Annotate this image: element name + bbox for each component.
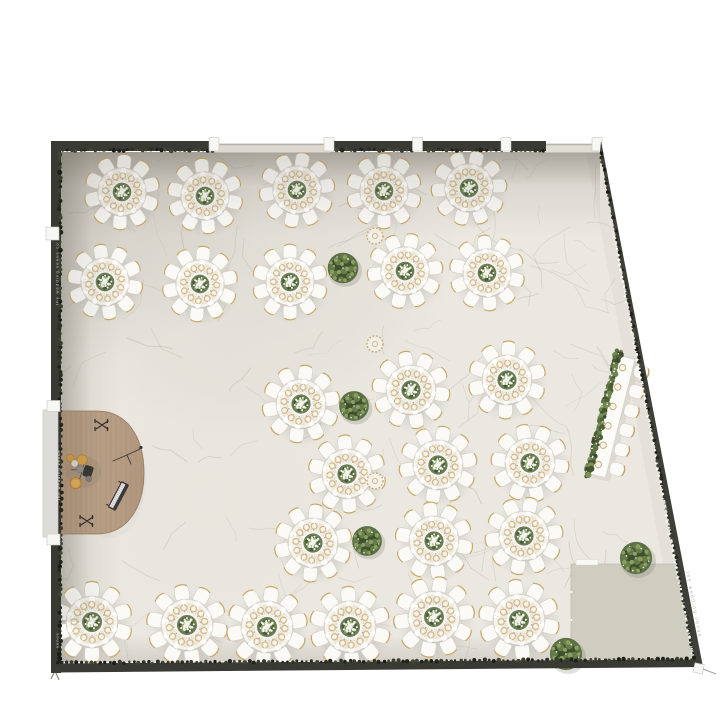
svg-text:venue: venue	[55, 632, 60, 648]
svg-text:the wedding venue co: the wedding venue co	[55, 242, 60, 305]
svg-text:the wedding venue: the wedding venue	[56, 449, 61, 500]
